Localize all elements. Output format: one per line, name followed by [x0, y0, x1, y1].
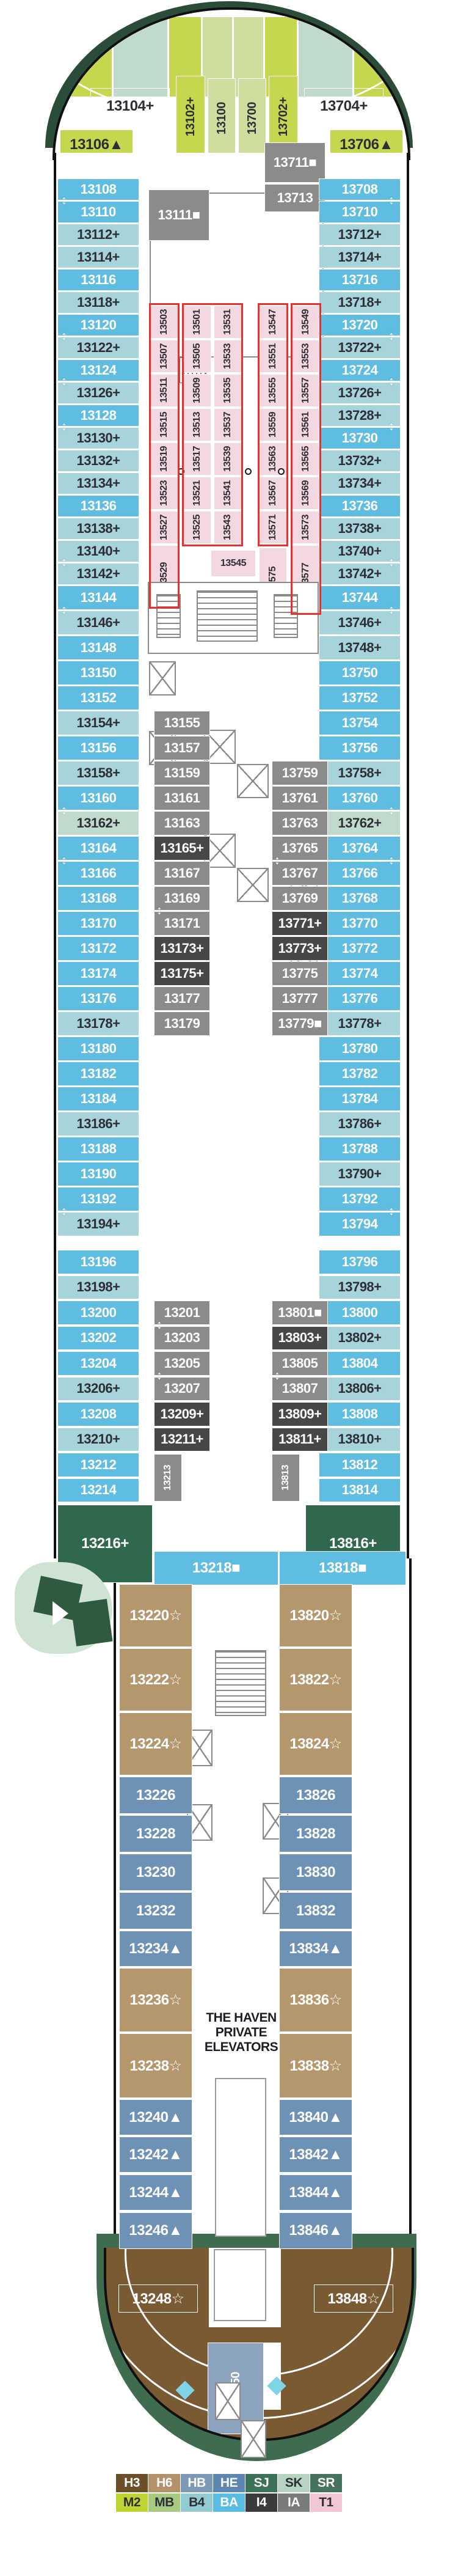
cabin-13114[interactable]: 13114+	[57, 246, 139, 268]
cabin-13200[interactable]: 13200	[57, 1301, 139, 1325]
cabin-13173[interactable]: 13173+	[154, 936, 210, 961]
stairs	[197, 590, 258, 642]
cabin-13208[interactable]: 13208	[57, 1402, 139, 1426]
cabin-13214[interactable]: 13214	[57, 1478, 139, 1503]
cabin-13750[interactable]: 13750	[319, 661, 401, 685]
legend-category-M2[interactable]: M2	[116, 2493, 148, 2512]
cabin-13775[interactable]: 13775	[272, 961, 328, 986]
cabin-13848[interactable]: 13848☆	[314, 2284, 393, 2313]
cabin-13209[interactable]: 13209+	[154, 1402, 210, 1426]
connecting-stateroom-arrow-icon: ↕	[61, 194, 73, 207]
deck-plan: 13104+13102+131001370013702+13704+13106▲…	[0, 0, 458, 2576]
cabin-13780[interactable]: 13780	[319, 1037, 401, 1061]
cabin-13163[interactable]: 13163	[154, 811, 210, 835]
cabin-13100[interactable]: 13100	[208, 78, 236, 158]
cabin-13138[interactable]: 13138+	[57, 518, 139, 540]
cabin-13178[interactable]: 13178+	[57, 1011, 139, 1036]
cabin-13156[interactable]: 13156	[57, 736, 139, 760]
cabin-13803[interactable]: 13803+	[272, 1326, 328, 1351]
cabin-13770[interactable]: 13770	[319, 911, 401, 936]
connecting-stateroom-arrow-icon: ↕	[61, 556, 73, 568]
connecting-stateroom-arrow-icon: ↕	[61, 420, 73, 433]
cabin-13238[interactable]: 13238☆	[119, 2033, 192, 2098]
cabin-13116[interactable]: 13116	[57, 269, 139, 291]
cabin-13704[interactable]: 13704+	[304, 88, 383, 125]
ship-bow-hull: 13104+13102+131001370013702+13704+13106▲…	[53, 7, 410, 160]
cabin-13220[interactable]: 13220☆	[119, 1584, 192, 1647]
studio-complex-outline	[182, 303, 243, 546]
cabin-13714[interactable]: 13714+	[319, 246, 401, 268]
cabin-13184[interactable]: 13184	[57, 1087, 139, 1111]
cabin-13246[interactable]: 13246▲	[119, 2212, 192, 2249]
cabin-13811[interactable]: 13811+	[272, 1428, 328, 1452]
cabin-13736[interactable]: 13736	[319, 495, 401, 517]
cabin-13759[interactable]: 13759	[272, 761, 328, 785]
connecting-stateroom-arrow-icon: ↕	[61, 375, 73, 387]
connecting-stateroom-arrow-icon: ↕	[388, 420, 401, 433]
cabin-13168[interactable]: 13168	[57, 886, 139, 911]
connecting-stateroom-arrow-icon: ↕	[61, 330, 73, 342]
cabin-13778[interactable]: 13778+	[319, 1011, 401, 1036]
legend-category-HE[interactable]: HE	[213, 2474, 245, 2492]
cabin-13174[interactable]: 13174	[57, 961, 139, 986]
cabin-13756[interactable]: 13756	[319, 736, 401, 760]
cabin-13182[interactable]: 13182	[57, 1062, 139, 1086]
cabin-13738[interactable]: 13738+	[319, 518, 401, 540]
legend-category-HB[interactable]: HB	[181, 2474, 213, 2492]
cabin-13134[interactable]: 13134+	[57, 472, 139, 494]
cabin-13198[interactable]: 13198+	[57, 1275, 139, 1300]
cabin-13242[interactable]: 13242▲	[119, 2137, 192, 2173]
cabin-13784[interactable]: 13784	[319, 1087, 401, 1111]
haven-private-elevators-label: THE HAVEN PRIVATE ELEVATORS	[189, 2011, 293, 2055]
cabin-13830[interactable]: 13830	[279, 1854, 352, 1891]
connecting-stateroom-arrow-icon: ↕	[61, 804, 73, 816]
cabin-13832[interactable]: 13832	[279, 1892, 352, 1929]
cabin-13180[interactable]: 13180	[57, 1037, 139, 1061]
cabin-13842[interactable]: 13842▲	[279, 2137, 352, 2173]
stern-stair-shaft	[214, 2249, 266, 2321]
exterior-decor	[53, 1601, 68, 1626]
cabin-13228[interactable]: 13228	[119, 1815, 192, 1852]
cabin-13802[interactable]: 13802+	[319, 1326, 401, 1351]
cabin-13771[interactable]: 13771+	[272, 911, 328, 936]
cabin-13812[interactable]: 13812	[319, 1453, 401, 1477]
cabin-13814[interactable]: 13814	[319, 1478, 401, 1503]
cabin-13136[interactable]: 13136	[57, 495, 139, 517]
cabin-13776[interactable]: 13776	[319, 986, 401, 1011]
connecting-stateroom-arrow-icon: ↕	[388, 604, 401, 616]
cabin-13212[interactable]: 13212	[57, 1453, 139, 1477]
cabin-13206[interactable]: 13206+	[57, 1377, 139, 1401]
legend-category-MB[interactable]: MB	[148, 2493, 180, 2512]
connecting-stateroom-arrow-icon: ↕	[156, 905, 169, 917]
cabin-13158[interactable]: 13158+	[57, 761, 139, 785]
cabin-13104[interactable]: 13104+	[90, 88, 170, 125]
cabin-13777[interactable]: 13777	[272, 986, 328, 1011]
connecting-stateroom-arrow-icon: ↕	[388, 330, 401, 342]
cabin-13111[interactable]: 13111■	[148, 189, 209, 241]
cabin-13545[interactable]: 13545	[211, 550, 256, 577]
cabin-13222[interactable]: 13222☆	[119, 1648, 192, 1711]
connecting-stateroom-arrow-icon: ↕	[274, 854, 286, 867]
cabin-13177[interactable]: 13177	[154, 986, 210, 1011]
cabin-13154[interactable]: 13154+	[57, 711, 139, 735]
cabin-13768[interactable]: 13768	[319, 886, 401, 911]
cabin-13196[interactable]: 13196	[57, 1250, 139, 1274]
connecting-stateroom-arrow-icon: ↕	[61, 604, 73, 616]
cabin-13155[interactable]: 13155	[154, 711, 210, 735]
aft-stairs	[215, 1650, 266, 1716]
legend-category-SJ[interactable]: SJ	[245, 2474, 277, 2492]
cabin-13782[interactable]: 13782	[319, 1062, 401, 1086]
cabin-13716[interactable]: 13716	[319, 269, 401, 291]
cabin-13772[interactable]: 13772	[319, 936, 401, 961]
cabin-13712[interactable]: 13712+	[319, 224, 401, 246]
cabin-13788[interactable]: 13788	[319, 1137, 401, 1161]
legend-category-SR[interactable]: SR	[310, 2474, 342, 2492]
connecting-stateroom-arrow-icon: ↕	[61, 854, 73, 867]
cabin-13840[interactable]: 13840▲	[279, 2099, 352, 2135]
cabin-13820[interactable]: 13820☆	[279, 1584, 352, 1647]
cabin-13202[interactable]: 13202	[57, 1326, 139, 1351]
cabin-13761[interactable]: 13761	[272, 786, 328, 810]
cabin-13808[interactable]: 13808	[319, 1402, 401, 1426]
cabin-13167[interactable]: 13167	[154, 861, 210, 886]
cabin-13157[interactable]: 13157	[154, 736, 210, 760]
cabin-13809[interactable]: 13809+	[272, 1402, 328, 1426]
cabin-13713[interactable]: 13713	[264, 184, 325, 212]
legend-category-IA[interactable]: IA	[278, 2493, 310, 2512]
connecting-stateroom-arrow-icon: ↕	[156, 1370, 169, 1382]
cabin-13112[interactable]: 13112+	[57, 224, 139, 246]
connecting-stateroom-arrow-icon: ↕	[274, 1370, 286, 1382]
cabin-13798[interactable]: 13798+	[319, 1275, 401, 1300]
legend-category-SK[interactable]: SK	[278, 2474, 310, 2492]
cabin-13210[interactable]: 13210+	[57, 1428, 139, 1452]
cabin-13248[interactable]: 13248☆	[118, 2284, 198, 2313]
cabin-13132[interactable]: 13132+	[57, 450, 139, 472]
exterior-garden-decor	[70, 1599, 112, 1646]
cabin-13834[interactable]: 13834▲	[279, 1931, 352, 1967]
cabin-13763[interactable]: 13763	[272, 811, 328, 835]
legend-category-B4[interactable]: B4	[181, 2493, 213, 2512]
connecting-stateroom-arrow-icon: ↕	[61, 1205, 73, 1217]
cabin-13804[interactable]: 13804	[319, 1351, 401, 1376]
haven-elevator-icon	[215, 2382, 241, 2420]
cabin-13826[interactable]: 13826	[279, 1777, 352, 1814]
cabin-13796[interactable]: 13796	[319, 1250, 401, 1274]
corridor-porthole-icon	[245, 468, 252, 475]
cabin-13818[interactable]: 13818■	[279, 1551, 406, 1585]
cabin-13148[interactable]: 13148	[57, 636, 139, 660]
cabin-13159[interactable]: 13159	[154, 761, 210, 785]
connecting-stateroom-arrow-icon: ↕	[388, 375, 401, 387]
cabin-13790[interactable]: 13790+	[319, 1162, 401, 1186]
cabin-13846[interactable]: 13846▲	[279, 2212, 352, 2249]
cabin-13150[interactable]: 13150	[57, 661, 139, 685]
cabin-13711[interactable]: 13711■	[264, 142, 325, 183]
legend-category-I4[interactable]: I4	[245, 2493, 277, 2512]
cabin-13186[interactable]: 13186+	[57, 1112, 139, 1136]
cabin-13170[interactable]: 13170	[57, 911, 139, 936]
cabin-13236[interactable]: 13236☆	[119, 1968, 192, 2032]
connecting-stateroom-arrow-icon: ↕	[156, 1319, 169, 1331]
cabin-13748[interactable]: 13748+	[319, 636, 401, 660]
cabin-13800[interactable]: 13800	[319, 1301, 401, 1325]
elevator-icon	[237, 764, 269, 798]
cabin-13769[interactable]: 13769	[272, 886, 328, 911]
connecting-stateroom-arrow-icon: ↕	[388, 556, 401, 568]
cabin-13810[interactable]: 13810+	[319, 1428, 401, 1452]
cabin-13204[interactable]: 13204	[57, 1351, 139, 1376]
connecting-stateroom-arrow-icon: ↕	[388, 854, 401, 867]
cabin-13752[interactable]: 13752	[319, 686, 401, 710]
cabin-13218[interactable]: 13218■	[154, 1551, 278, 1585]
cabin-13824[interactable]: 13824☆	[279, 1712, 352, 1775]
cabin-13836[interactable]: 13836☆	[279, 1968, 352, 2032]
cabin-13700[interactable]: 13700	[238, 78, 266, 158]
stern-corridor	[264, 2343, 281, 2410]
elevator-icon	[237, 868, 269, 902]
cabin-13801[interactable]: 13801■	[272, 1301, 328, 1325]
cabin-13213[interactable]: 13213	[154, 1454, 182, 1502]
cabin-13774[interactable]: 13774	[319, 961, 401, 986]
cabin-13118[interactable]: 13118+	[57, 292, 139, 314]
cabin-13190[interactable]: 13190	[57, 1162, 139, 1186]
cabin-13813[interactable]: 13813	[272, 1454, 300, 1502]
cabin-13844[interactable]: 13844▲	[279, 2174, 352, 2211]
haven-elevator-icon	[241, 2420, 266, 2458]
cabin-13211[interactable]: 13211+	[154, 1428, 210, 1452]
connecting-stateroom-arrow-icon: ↕	[388, 804, 401, 816]
cabin-13226[interactable]: 13226	[119, 1777, 192, 1814]
cabin-13838[interactable]: 13838☆	[279, 2033, 352, 2098]
cabin-13732[interactable]: 13732+	[319, 450, 401, 472]
cabin-13244[interactable]: 13244▲	[119, 2174, 192, 2211]
cabin-13754[interactable]: 13754	[319, 711, 401, 735]
cabin-13232[interactable]: 13232	[119, 1892, 192, 1929]
cabin-13828[interactable]: 13828	[279, 1815, 352, 1852]
connecting-stateroom-arrow-icon: ↕	[388, 1205, 401, 1217]
cabin-13102[interactable]: 13102+	[176, 76, 205, 158]
cabin-13175[interactable]: 13175+	[154, 961, 210, 986]
cabin-13806[interactable]: 13806+	[319, 1377, 401, 1401]
haven-elevator-shaft	[215, 2078, 266, 2237]
studio-complex-outline	[258, 303, 288, 546]
cabin-13224[interactable]: 13224☆	[119, 1712, 192, 1775]
cabin-13172[interactable]: 13172	[57, 936, 139, 961]
legend-category-H6[interactable]: H6	[148, 2474, 180, 2492]
cabin-13240[interactable]: 13240▲	[119, 2099, 192, 2135]
legend-category-H3[interactable]: H3	[116, 2474, 148, 2492]
cabin-13758[interactable]: 13758+	[319, 761, 401, 785]
cabin-13188[interactable]: 13188	[57, 1137, 139, 1161]
cabin-13718[interactable]: 13718+	[319, 292, 401, 314]
cabin-13234[interactable]: 13234▲	[119, 1931, 192, 1967]
legend-category-BA[interactable]: BA	[213, 2493, 245, 2512]
studio-complex-outline	[149, 303, 180, 609]
studio-complex-outline	[291, 303, 321, 615]
legend-category-T1[interactable]: T1	[310, 2493, 342, 2512]
connecting-stateroom-arrow-icon: ↕	[388, 194, 401, 207]
cabin-13165[interactable]: 13165+	[154, 836, 210, 861]
cabin-13779[interactable]: 13779■	[272, 1011, 328, 1036]
elevator-icon	[149, 661, 176, 695]
cabin-13822[interactable]: 13822☆	[279, 1648, 352, 1711]
cabin-13152[interactable]: 13152	[57, 686, 139, 710]
cabin-13786[interactable]: 13786+	[319, 1112, 401, 1136]
cabin-13230[interactable]: 13230	[119, 1854, 192, 1891]
cabin-13773[interactable]: 13773+	[272, 936, 328, 961]
cabin-13179[interactable]: 13179	[154, 1011, 210, 1036]
cabin-13176[interactable]: 13176	[57, 986, 139, 1011]
cabin-13734[interactable]: 13734+	[319, 472, 401, 494]
cabin-13161[interactable]: 13161	[154, 786, 210, 810]
